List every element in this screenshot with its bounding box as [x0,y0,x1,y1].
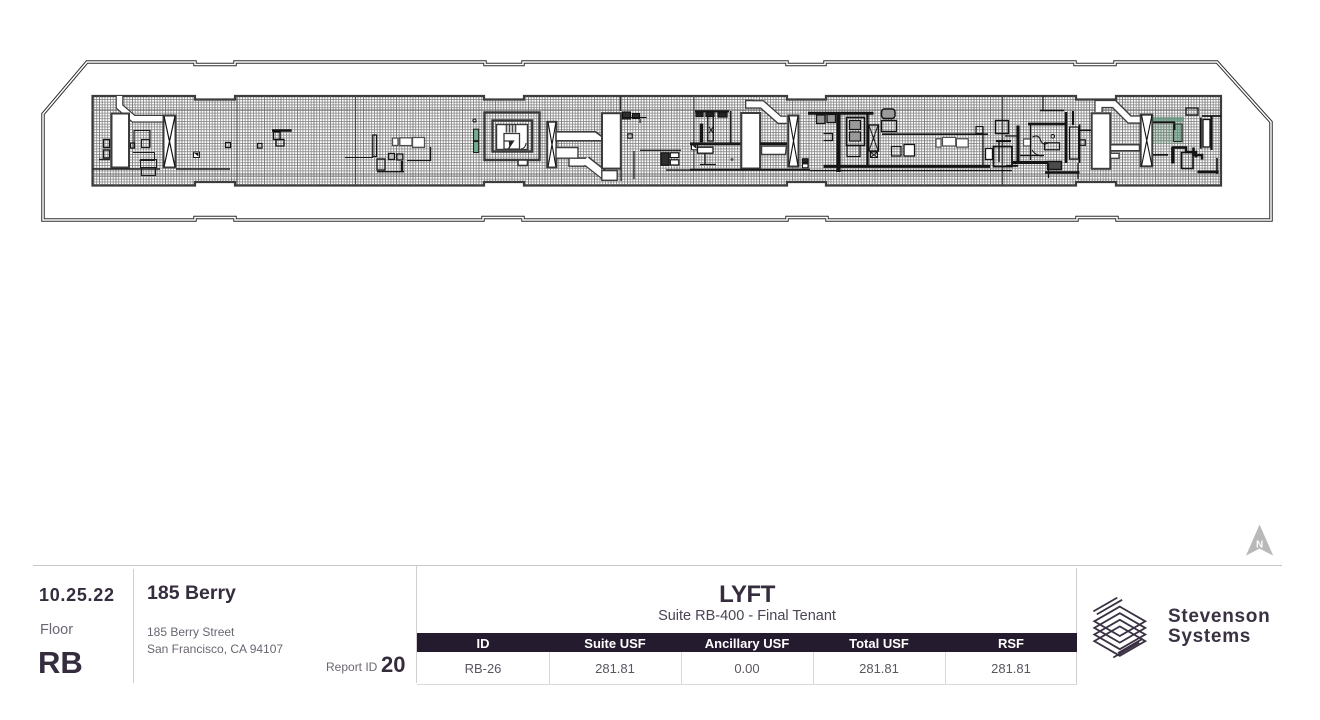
svg-text:N: N [1256,539,1263,550]
